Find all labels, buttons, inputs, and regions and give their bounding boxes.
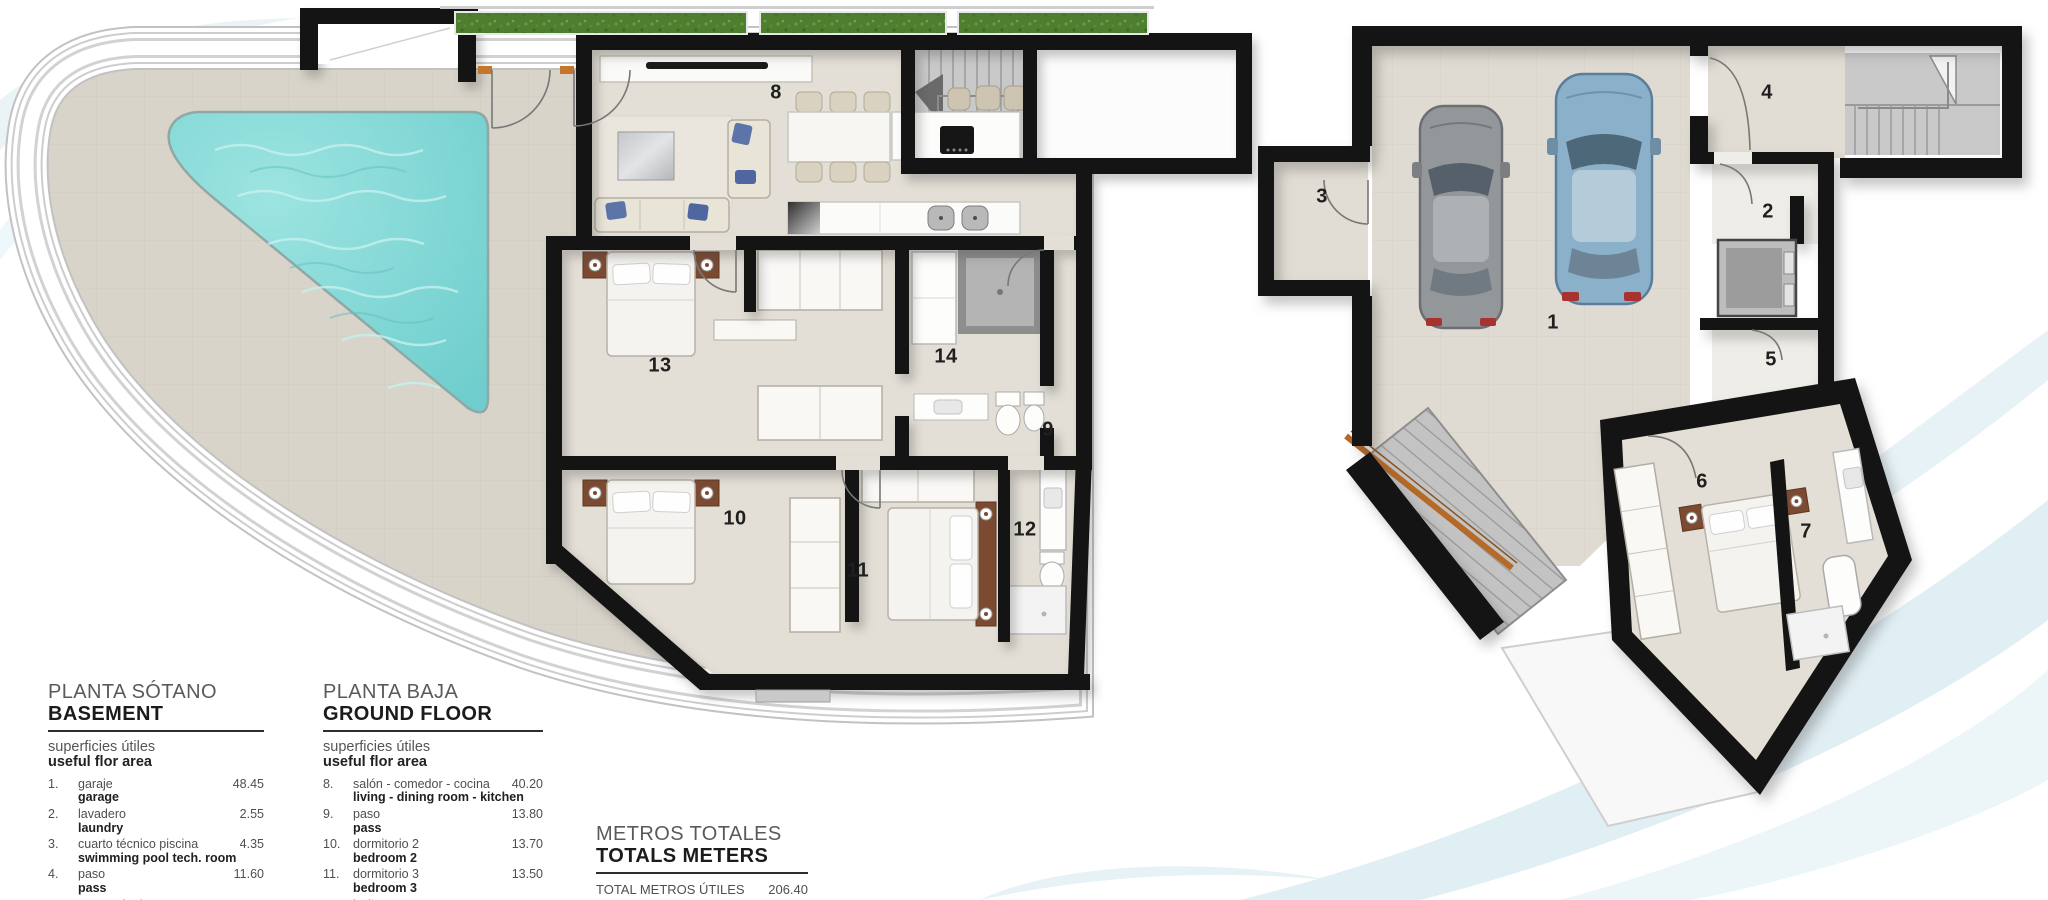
legend-basement-title-es: PLANTA SÓTANO (48, 682, 264, 702)
shower-7 (1787, 606, 1850, 660)
planter-grass (958, 12, 1148, 34)
room-label-8: 8 (770, 82, 782, 105)
legend-item: 2. lavaderolaundry 2.55 (48, 808, 264, 835)
legend-basement-subtitle-en: useful flor area (48, 755, 264, 770)
item-area: 13.70 (497, 838, 543, 851)
item-name-es: paso (353, 808, 497, 821)
car-blue (1547, 74, 1661, 304)
item-number: 4. (48, 868, 78, 881)
legend-item: 10. dormitorio 2bedroom 2 13.70 (323, 838, 543, 865)
ground-floor-plan (27, 6, 1252, 703)
kitchen-counter (788, 202, 1020, 234)
legend-ground-floor: PLANTA BAJA GROUND FLOOR superficies úti… (323, 682, 543, 900)
legend-basement: PLANTA SÓTANO BASEMENT superficies útile… (48, 682, 264, 900)
dining-set (788, 92, 890, 182)
car-gray (1412, 106, 1510, 328)
item-area: 4.35 (218, 838, 264, 851)
tv (646, 62, 768, 69)
item-name-en: pass (78, 882, 218, 895)
entry-sill (560, 66, 574, 74)
room-label-11: 11 (847, 560, 869, 583)
item-area: 13.50 (497, 868, 543, 881)
item-name-es: cuarto técnico piscina (78, 838, 218, 851)
item-name-en: swimming pool tech. room (78, 852, 218, 865)
legend-totals: METROS TOTALES TOTALS METERS TOTAL METRO… (596, 824, 808, 900)
item-name-en: bedroom 3 (353, 882, 497, 895)
lightwell (1037, 50, 1236, 158)
item-number: 1. (48, 778, 78, 791)
item-area: 2.55 (218, 808, 264, 821)
legend-item: 9. pasopass 13.80 (323, 808, 543, 835)
item-name-es: salón - comedor - cocina (353, 778, 497, 791)
item-name-en: living - dining room - kitchen (353, 791, 497, 804)
legend-item: 1. garajegarage 48.45 (48, 778, 264, 805)
chaise-lounge (728, 120, 770, 198)
item-name-en: pass (353, 822, 497, 835)
item-number: 10. (323, 838, 353, 851)
item-name-es: garaje (78, 778, 218, 791)
floorplan-sheet: 8 9 10 11 12 13 14 1 2 3 4 5 6 7 PLANTA … (0, 0, 2048, 900)
item-number: 9. (323, 808, 353, 821)
item-number: 11. (323, 868, 353, 881)
sofa (595, 198, 729, 232)
planter-grass (760, 12, 946, 34)
legend-ground-subtitle-es: superficies útiles (323, 740, 543, 755)
totals-value: 206.40 (748, 882, 808, 900)
hall-shelf (714, 320, 796, 340)
item-name-es: dormitorio 2 (353, 838, 497, 851)
legend-item: 8. salón - comedor - cocinaliving - dini… (323, 778, 543, 805)
corridor-4-floor (1708, 46, 1845, 158)
legend-basement-items: 1. garajegarage 48.45 2. lavaderolaundry… (48, 778, 264, 900)
entry-sill (478, 66, 492, 74)
item-name-es: lavadero (78, 808, 218, 821)
exterior-step (756, 690, 830, 702)
room-label-9: 9 (1042, 419, 1054, 442)
item-number: 3. (48, 838, 78, 851)
legend-ground-title-es: PLANTA BAJA (323, 682, 543, 702)
room-label-6: 6 (1696, 471, 1708, 494)
item-name-en: garage (78, 791, 218, 804)
elevator (1718, 240, 1796, 316)
room-label-2: 2 (1762, 201, 1774, 224)
legend-item: 3. cuarto técnico piscinaswimming pool t… (48, 838, 264, 865)
item-area: 48.45 (218, 778, 264, 791)
planter-grass (455, 12, 747, 34)
room-label-7: 7 (1800, 521, 1812, 544)
item-number: 8. (323, 778, 353, 791)
item-name-es: dormitorio 3 (353, 868, 497, 881)
room-label-3: 3 (1316, 186, 1328, 209)
cooktop (940, 126, 974, 154)
item-name-es: paso (78, 868, 218, 881)
legend-rule (48, 730, 264, 732)
legend-rule (323, 730, 543, 732)
room-label-10: 10 (723, 508, 746, 531)
item-area: 40.20 (497, 778, 543, 791)
door-opening (1714, 152, 1752, 164)
room-label-1: 1 (1547, 312, 1559, 335)
room-label-13: 13 (648, 355, 671, 378)
room-label-4: 4 (1761, 82, 1773, 105)
room-label-14: 14 (934, 346, 957, 369)
item-area: 11.60 (218, 868, 264, 881)
item-number: 2. (48, 808, 78, 821)
legend-totals-title-en: TOTALS METERS (596, 846, 808, 866)
basement-stairs-floor (1845, 53, 2000, 155)
legend-ground-title-en: GROUND FLOOR (323, 704, 543, 724)
room-label-12: 12 (1013, 519, 1036, 542)
legend-ground-subtitle-en: useful flor area (323, 755, 543, 770)
item-name-en: bedroom 2 (353, 852, 497, 865)
wardrobe-13 (758, 250, 882, 310)
coffee-table (618, 132, 674, 180)
item-name-en: laundry (78, 822, 218, 835)
totals-label-es: TOTAL METROS ÚTILES (596, 882, 748, 897)
dining-table (788, 112, 890, 162)
legend-basement-title-en: BASEMENT (48, 704, 264, 724)
shower-12 (1008, 586, 1066, 634)
legend-totals-row: TOTAL METROS ÚTILES TOTAL USEFUL METERS … (596, 882, 808, 900)
closet-10 (790, 498, 840, 632)
legend-item: 4. pasopass 11.60 (48, 868, 264, 895)
item-area: 13.80 (497, 808, 543, 821)
legend-totals-title-es: METROS TOTALES (596, 824, 808, 844)
legend-basement-subtitle-es: superficies útiles (48, 740, 264, 755)
legend-item: 11. dormitorio 3bedroom 3 13.50 (323, 868, 543, 895)
planters (440, 6, 1154, 34)
legend-rule (596, 872, 808, 874)
legend-ground-items: 8. salón - comedor - cocinaliving - dini… (323, 778, 543, 900)
bed-11 (888, 502, 996, 626)
plans-drawing (0, 0, 2048, 900)
room-label-5: 5 (1765, 349, 1777, 372)
